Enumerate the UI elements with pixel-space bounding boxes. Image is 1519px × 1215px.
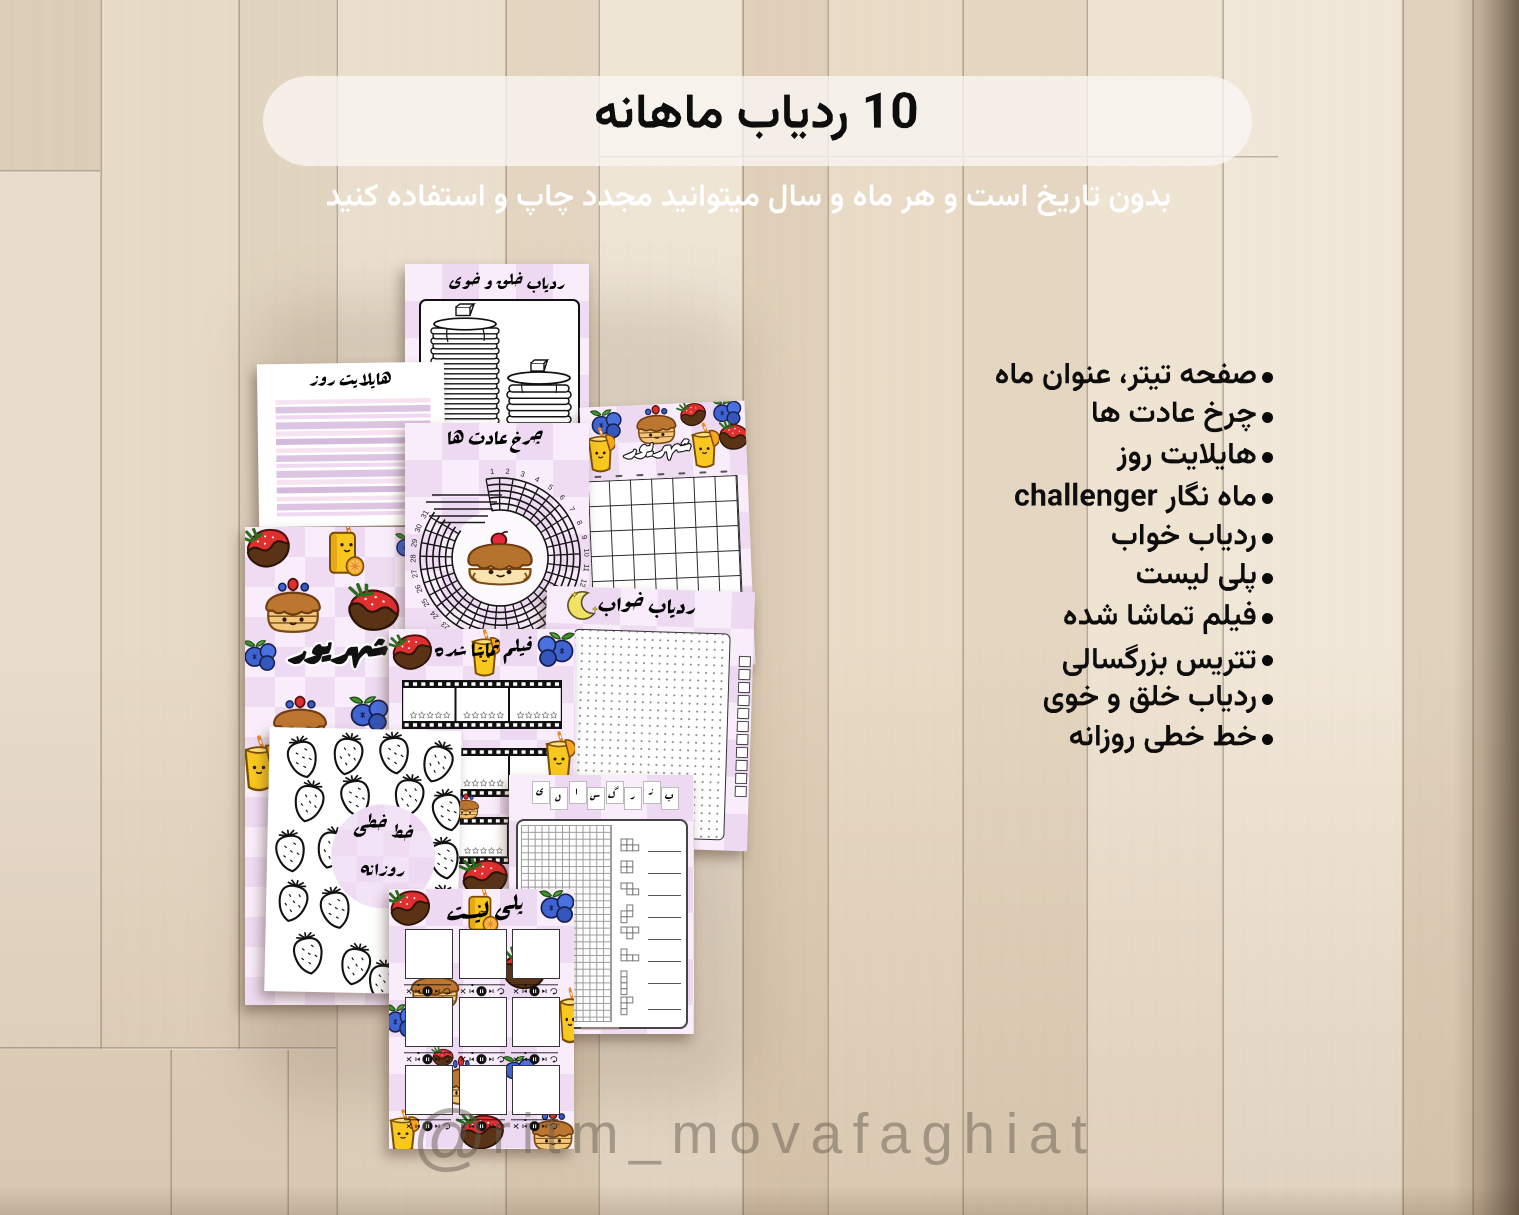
svg-text:4: 4 [533,474,541,484]
svg-text:3: 3 [520,469,526,479]
svg-text:11: 11 [581,564,589,573]
svg-text:1: 1 [490,467,495,476]
svg-text:8: 8 [575,519,585,526]
svg-text:7: 7 [567,505,577,513]
svg-text:28: 28 [409,554,418,562]
svg-text:27: 27 [409,569,419,579]
svg-text:29: 29 [409,538,419,548]
svg-text:25: 25 [419,597,431,609]
svg-text:5: 5 [546,482,555,492]
svg-text:24: 24 [428,609,440,621]
svg-text:10: 10 [582,548,589,557]
svg-text:30: 30 [413,523,424,534]
svg-text:26: 26 [413,583,424,594]
svg-text:31: 31 [419,508,431,520]
svg-text:9: 9 [580,534,589,540]
svg-text:2: 2 [505,467,510,476]
svg-text:6: 6 [558,493,567,502]
